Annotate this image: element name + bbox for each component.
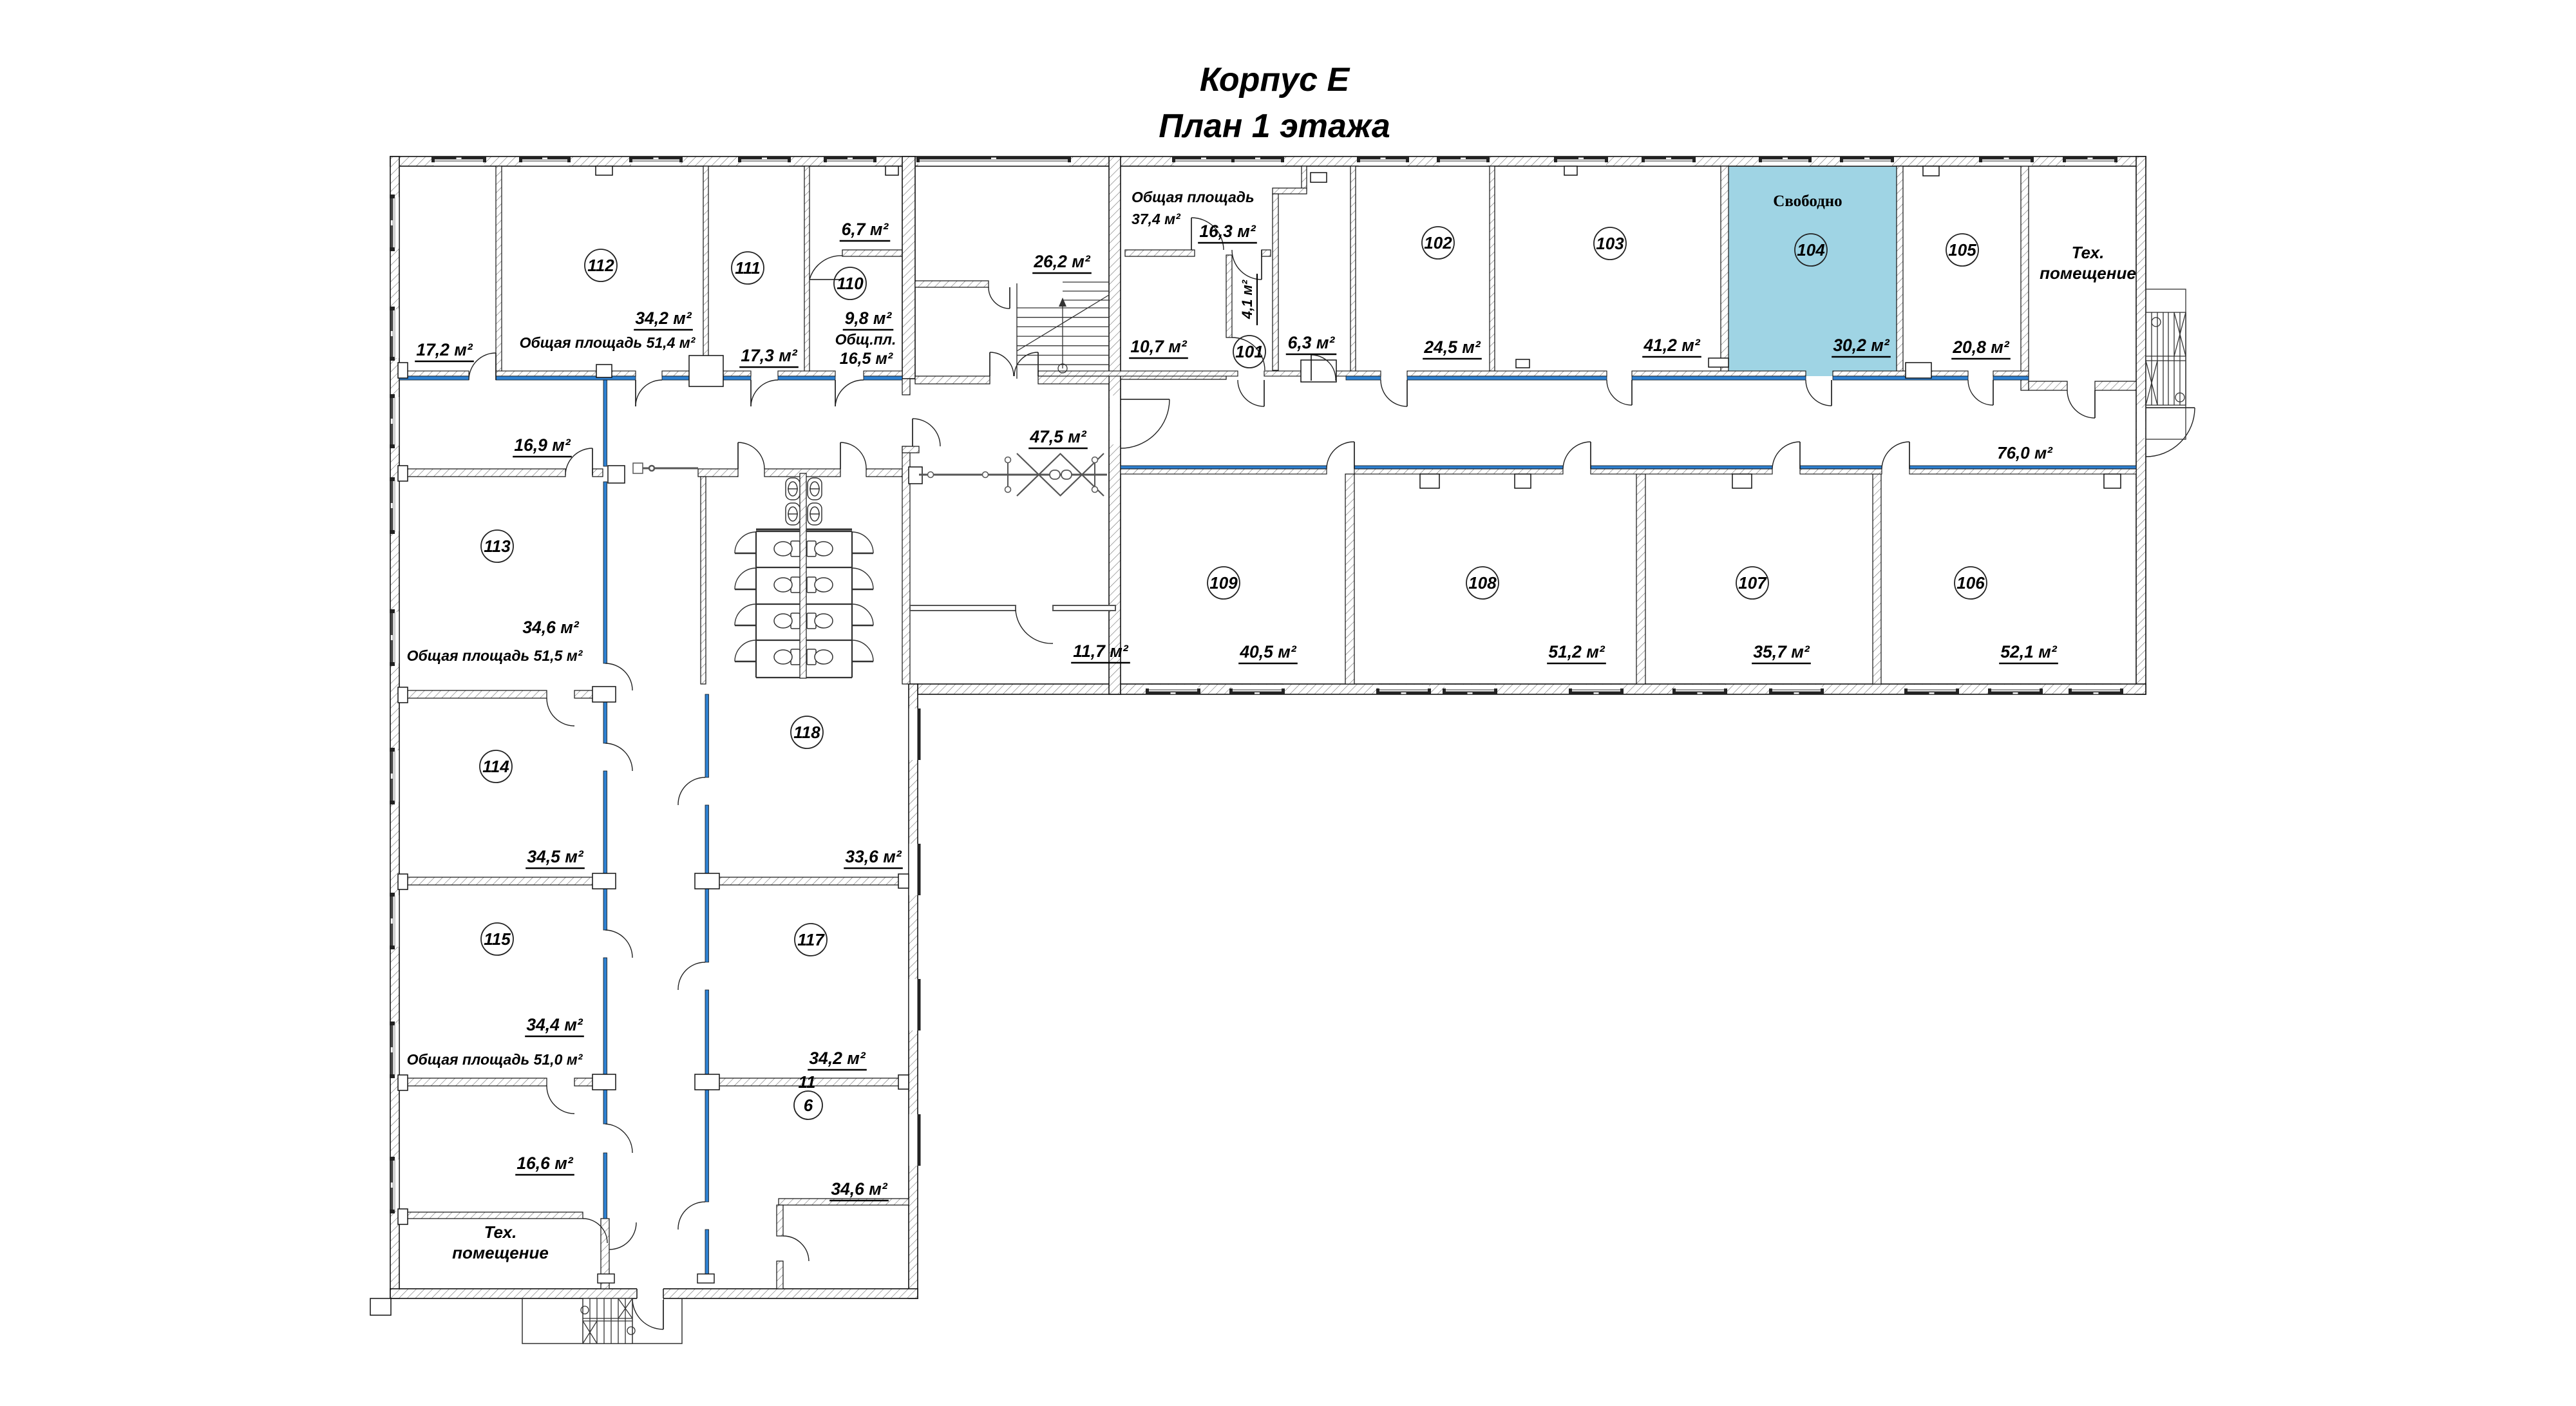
- svg-text:104: 104: [1797, 240, 1825, 260]
- svg-text:17,3 м²: 17,3 м²: [741, 346, 798, 365]
- svg-text:План 1 этажа: План 1 этажа: [1159, 108, 1390, 145]
- svg-text:34,2 м²: 34,2 м²: [809, 1049, 866, 1068]
- svg-text:117: 117: [797, 930, 825, 949]
- svg-text:115: 115: [484, 929, 511, 949]
- svg-text:16,9 м²: 16,9 м²: [514, 435, 571, 455]
- svg-text:Свободно: Свободно: [1773, 193, 1842, 210]
- svg-text:Корпус Е: Корпус Е: [1200, 61, 1350, 99]
- svg-text:4,1 м²: 4,1 м²: [1239, 280, 1255, 319]
- svg-text:Общая площадь 51,0 м²: Общая площадь 51,0 м²: [407, 1051, 583, 1068]
- svg-text:112: 112: [587, 256, 614, 275]
- svg-text:30,2 м²: 30,2 м²: [1833, 336, 1890, 355]
- svg-text:108: 108: [1468, 573, 1497, 593]
- svg-text:109: 109: [1209, 573, 1238, 593]
- svg-text:107: 107: [1738, 573, 1767, 593]
- svg-text:24,5 м²: 24,5 м²: [1423, 337, 1481, 357]
- svg-text:35,7 м²: 35,7 м²: [1753, 642, 1810, 661]
- svg-text:33,6 м²: 33,6 м²: [845, 847, 902, 866]
- svg-text:106: 106: [1956, 573, 1985, 593]
- svg-text:105: 105: [1948, 240, 1976, 260]
- svg-text:37,4 м²: 37,4 м²: [1132, 211, 1181, 227]
- svg-text:52,1 м²: 52,1 м²: [2000, 642, 2058, 661]
- svg-text:103: 103: [1596, 234, 1624, 253]
- svg-text:16,3 м²: 16,3 м²: [1199, 222, 1256, 241]
- svg-text:6,7 м²: 6,7 м²: [842, 220, 889, 239]
- svg-text:34,5 м²: 34,5 м²: [527, 847, 584, 866]
- svg-text:113: 113: [484, 537, 511, 556]
- svg-text:118: 118: [793, 723, 820, 742]
- svg-text:34,2 м²: 34,2 м²: [635, 309, 692, 328]
- svg-text:16,5 м²: 16,5 м²: [840, 350, 893, 368]
- svg-text:Тех.: Тех.: [2072, 243, 2105, 262]
- svg-text:11: 11: [799, 1072, 816, 1092]
- svg-text:17,2 м²: 17,2 м²: [416, 340, 473, 359]
- svg-text:111: 111: [735, 258, 761, 278]
- svg-text:102: 102: [1424, 233, 1452, 252]
- svg-text:101: 101: [1235, 342, 1263, 361]
- svg-text:114: 114: [482, 757, 509, 776]
- svg-text:40,5 м²: 40,5 м²: [1239, 642, 1297, 661]
- svg-text:26,2 м²: 26,2 м²: [1033, 252, 1091, 271]
- svg-text:34,6 м²: 34,6 м²: [522, 618, 580, 637]
- svg-text:34,6 м²: 34,6 м²: [831, 1179, 888, 1199]
- svg-text:Тех.: Тех.: [484, 1222, 517, 1242]
- svg-text:помещение: помещение: [452, 1243, 549, 1262]
- svg-text:10,7 м²: 10,7 м²: [1130, 337, 1188, 356]
- svg-text:6: 6: [804, 1096, 813, 1115]
- svg-text:47,5 м²: 47,5 м²: [1029, 427, 1087, 446]
- svg-text:16,6 м²: 16,6 м²: [516, 1154, 574, 1173]
- svg-text:6,3 м²: 6,3 м²: [1288, 333, 1336, 352]
- svg-text:34,4 м²: 34,4 м²: [526, 1015, 583, 1034]
- svg-text:76,0 м²: 76,0 м²: [1997, 443, 2053, 462]
- svg-text:41,2 м²: 41,2 м²: [1643, 336, 1701, 355]
- svg-text:Общая площадь 51,5 м²: Общая площадь 51,5 м²: [407, 647, 583, 664]
- svg-text:Общ.пл.: Общ.пл.: [835, 331, 896, 348]
- svg-text:помещение: помещение: [2040, 263, 2136, 283]
- svg-text:110: 110: [837, 274, 864, 293]
- svg-text:51,2 м²: 51,2 м²: [1548, 642, 1605, 661]
- svg-text:11,7 м²: 11,7 м²: [1073, 641, 1129, 661]
- svg-text:Общая площадь: Общая площадь: [1132, 189, 1255, 205]
- svg-text:9,8 м²: 9,8 м²: [845, 309, 893, 328]
- svg-text:Общая площадь 51,4 м²: Общая площадь 51,4 м²: [520, 334, 696, 351]
- svg-text:20,8 м²: 20,8 м²: [1952, 337, 2010, 357]
